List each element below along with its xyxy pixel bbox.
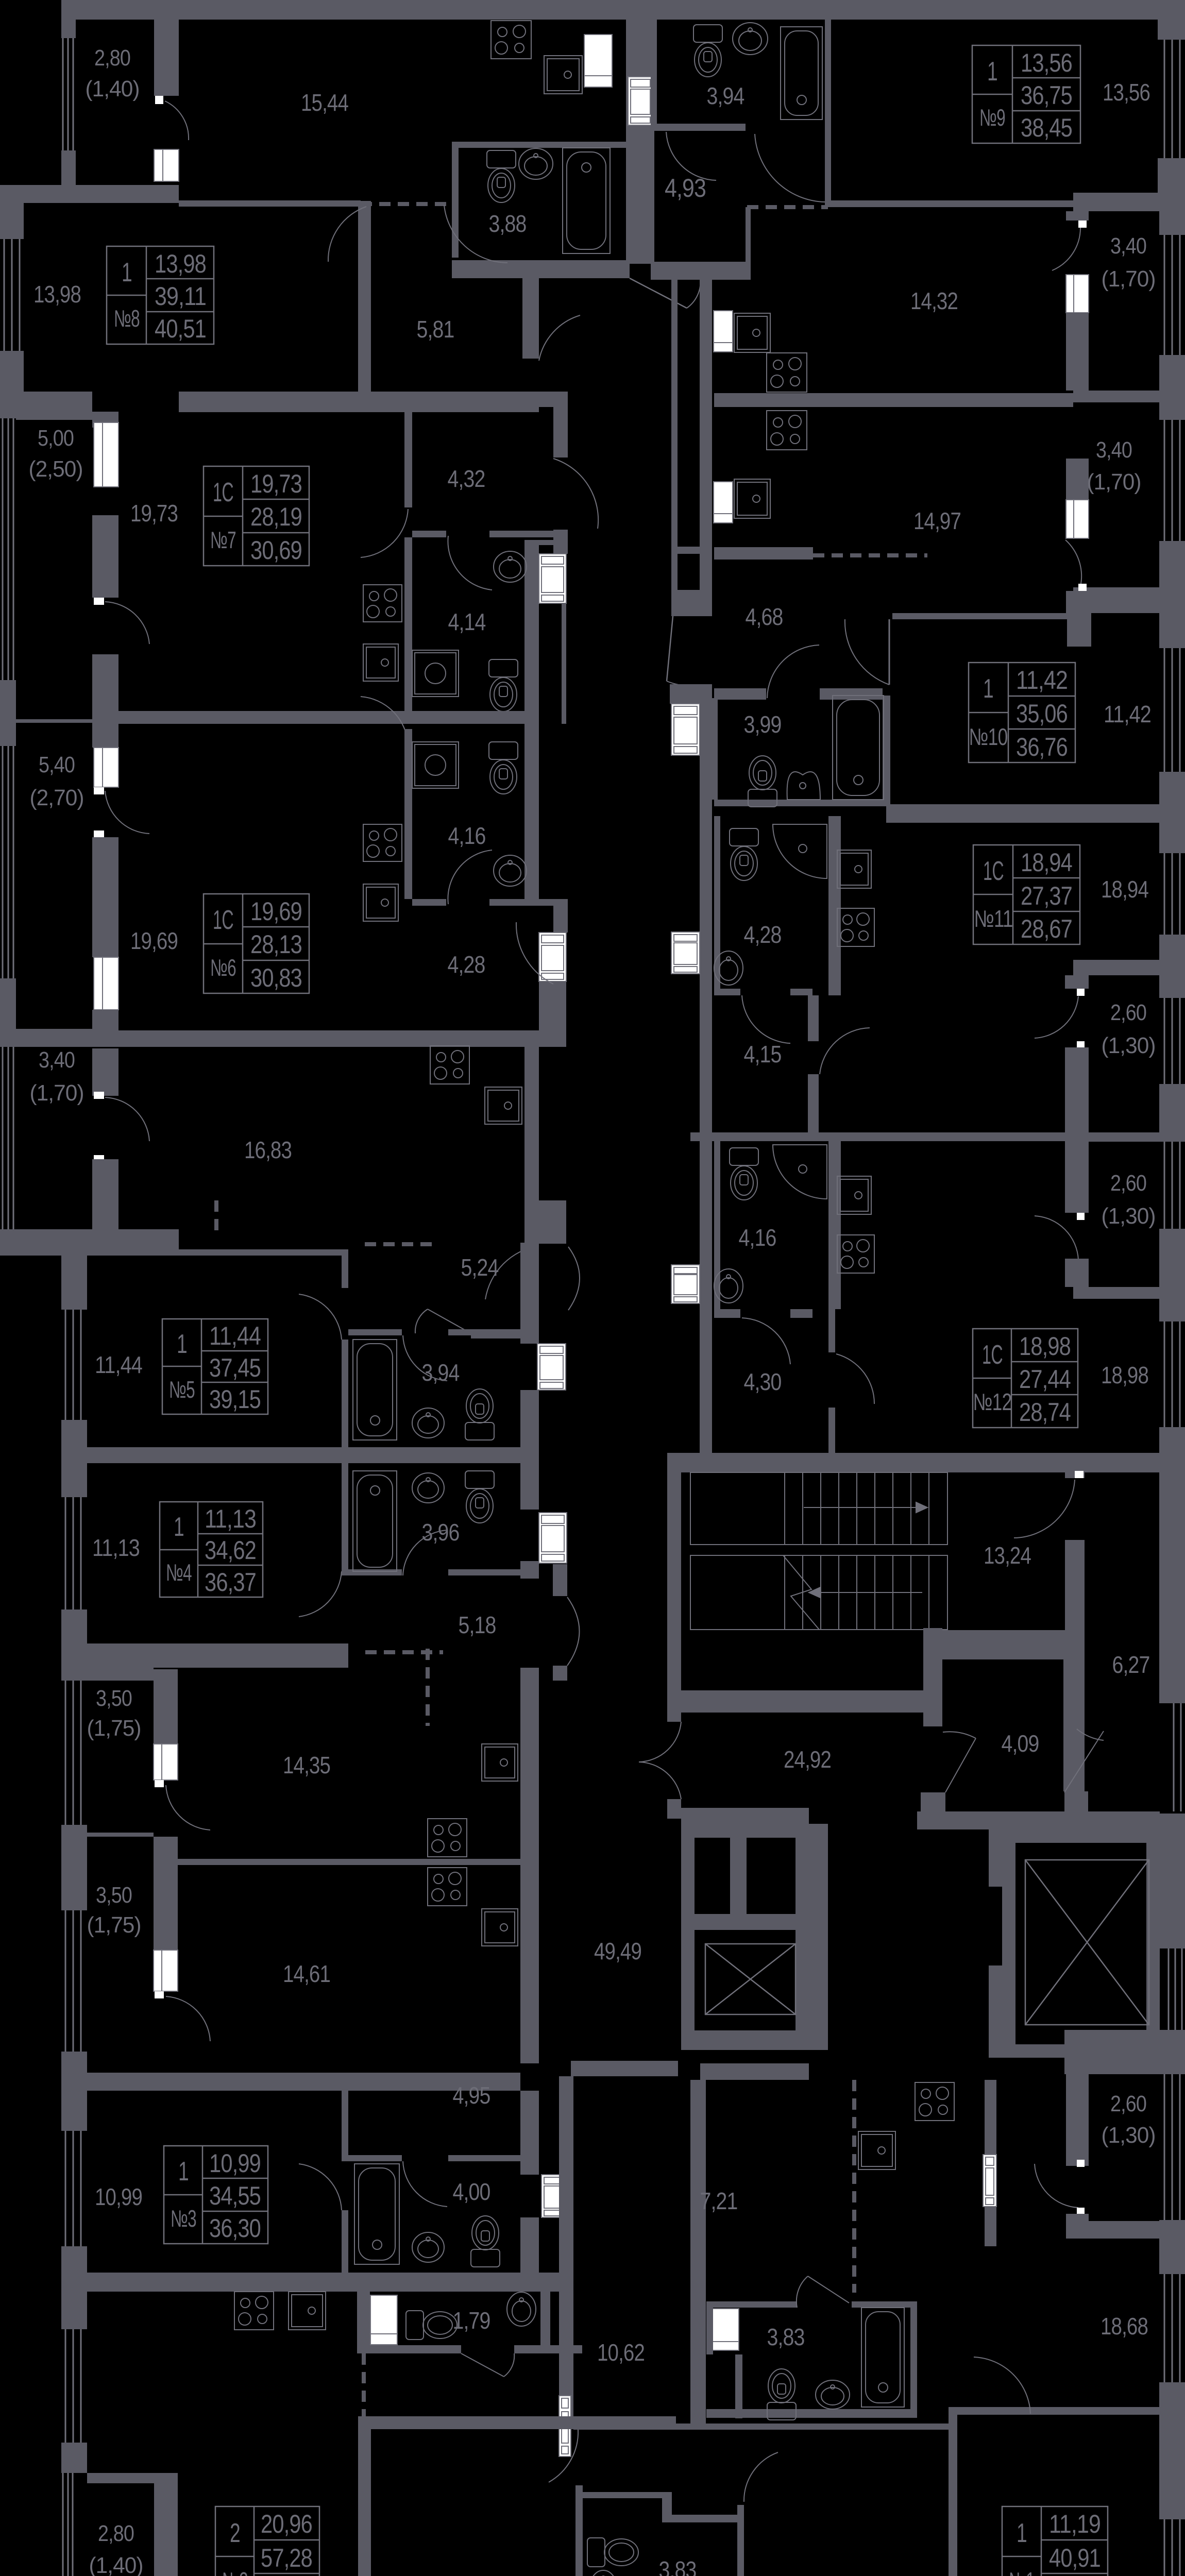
svg-text:3,94: 3,94 [707, 82, 744, 109]
svg-text:13,56: 13,56 [1103, 79, 1150, 106]
svg-text:28,13: 28,13 [250, 930, 302, 959]
svg-text:(1,30): (1,30) [1102, 1033, 1156, 1058]
svg-text:4,93: 4,93 [665, 174, 706, 202]
svg-text:3,50: 3,50 [96, 1686, 132, 1711]
svg-text:16,83: 16,83 [244, 1137, 292, 1163]
svg-text:1: 1 [178, 2157, 189, 2187]
svg-text:1: 1 [122, 258, 132, 287]
svg-text:20,96: 20,96 [261, 2510, 312, 2538]
svg-text:19,69: 19,69 [130, 927, 178, 954]
svg-text:1: 1 [1017, 2518, 1027, 2548]
svg-text:24,92: 24,92 [784, 1746, 831, 1773]
svg-text:4,09: 4,09 [1002, 1730, 1039, 1757]
svg-text:18,98: 18,98 [1101, 1362, 1148, 1388]
svg-text:4,32: 4,32 [448, 465, 485, 492]
svg-text:36,76: 36,76 [1016, 733, 1068, 761]
svg-text:(1,40): (1,40) [89, 2553, 143, 2576]
svg-text:(2,50): (2,50) [29, 456, 83, 482]
svg-text:19,73: 19,73 [250, 469, 302, 498]
svg-text:5,00: 5,00 [38, 426, 74, 451]
svg-text:№5: №5 [169, 1376, 195, 1403]
svg-text:4,15: 4,15 [744, 1041, 782, 1067]
svg-text:6,27: 6,27 [1112, 1651, 1150, 1678]
svg-text:10,62: 10,62 [597, 2339, 645, 2366]
svg-text:1: 1 [174, 1512, 184, 1542]
svg-text:3,99: 3,99 [744, 711, 782, 738]
svg-text:1: 1 [987, 57, 997, 87]
svg-text:19,73: 19,73 [130, 500, 178, 527]
svg-text:57,28: 57,28 [261, 2544, 312, 2572]
svg-text:1С: 1С [982, 1340, 1003, 1370]
svg-text:28,74: 28,74 [1019, 1398, 1071, 1427]
svg-text:30,83: 30,83 [250, 963, 302, 992]
svg-text:39,11: 39,11 [155, 282, 206, 311]
svg-text:14,97: 14,97 [913, 507, 961, 534]
svg-text:49,49: 49,49 [594, 1938, 641, 1964]
svg-text:10,99: 10,99 [95, 2183, 142, 2210]
svg-text:40,51: 40,51 [155, 314, 206, 343]
svg-text:4,14: 4,14 [448, 608, 486, 635]
svg-text:2,80: 2,80 [98, 2521, 134, 2546]
svg-text:№1: №1 [1009, 2567, 1035, 2576]
svg-text:3,83: 3,83 [767, 2324, 805, 2350]
svg-text:27,37: 27,37 [1021, 882, 1072, 910]
svg-text:5,24: 5,24 [461, 1254, 499, 1281]
svg-text:11,44: 11,44 [95, 1351, 142, 1378]
svg-text:1,79: 1,79 [453, 2307, 490, 2334]
svg-text:5,81: 5,81 [417, 316, 454, 343]
svg-text:(1,70): (1,70) [30, 1080, 84, 1106]
svg-text:(1,30): (1,30) [1102, 2123, 1156, 2148]
svg-text:(1,40): (1,40) [86, 76, 140, 101]
svg-text:34,55: 34,55 [209, 2181, 261, 2210]
svg-text:№7: №7 [210, 527, 236, 553]
svg-text:15,44: 15,44 [301, 89, 348, 116]
svg-text:18,94: 18,94 [1021, 848, 1072, 877]
svg-text:1: 1 [983, 674, 993, 704]
svg-text:14,32: 14,32 [910, 287, 958, 314]
svg-text:11,44: 11,44 [209, 1321, 261, 1350]
svg-text:2,80: 2,80 [94, 45, 130, 71]
svg-text:(2,70): (2,70) [30, 785, 84, 810]
svg-text:№8: №8 [114, 305, 140, 332]
svg-text:11,13: 11,13 [92, 1534, 140, 1561]
svg-text:40,91: 40,91 [1049, 2544, 1101, 2572]
svg-text:5,40: 5,40 [39, 752, 75, 777]
svg-text:11,42: 11,42 [1104, 701, 1151, 727]
svg-text:4,30: 4,30 [744, 1368, 782, 1395]
svg-text:28,67: 28,67 [1021, 914, 1072, 943]
svg-text:30,69: 30,69 [250, 536, 302, 565]
svg-text:№9: №9 [979, 104, 1005, 131]
svg-text:18,94: 18,94 [1101, 876, 1148, 903]
svg-text:2,60: 2,60 [1110, 2091, 1146, 2116]
svg-text:(1,30): (1,30) [1102, 1204, 1156, 1229]
svg-text:14,35: 14,35 [283, 1752, 330, 1778]
svg-text:№12: №12 [973, 1388, 1012, 1415]
svg-text:13,24: 13,24 [984, 1542, 1031, 1569]
svg-text:1С: 1С [213, 905, 233, 935]
svg-text:3,94: 3,94 [422, 1359, 460, 1386]
svg-text:11,13: 11,13 [205, 1504, 256, 1533]
svg-text:4,28: 4,28 [448, 951, 485, 978]
svg-text:36,30: 36,30 [209, 2214, 261, 2243]
svg-text:28,19: 28,19 [250, 502, 302, 531]
svg-text:5,18: 5,18 [459, 1612, 496, 1638]
svg-text:36,37: 36,37 [205, 1568, 256, 1597]
svg-text:37,45: 37,45 [209, 1353, 261, 1382]
svg-text:3,88: 3,88 [489, 210, 527, 237]
svg-text:3,96: 3,96 [422, 1519, 460, 1546]
svg-text:3,40: 3,40 [39, 1047, 75, 1073]
svg-text:1С: 1С [213, 478, 233, 507]
svg-text:7,21: 7,21 [700, 2188, 738, 2214]
svg-text:18,68: 18,68 [1101, 2313, 1148, 2340]
svg-text:3,40: 3,40 [1110, 233, 1146, 259]
svg-text:4,16: 4,16 [448, 822, 486, 849]
svg-text:(1,75): (1,75) [87, 1716, 141, 1741]
svg-text:1С: 1С [983, 856, 1004, 886]
svg-text:3,50: 3,50 [96, 1883, 132, 1908]
svg-text:3,83: 3,83 [659, 2556, 697, 2576]
svg-text:13,98: 13,98 [155, 249, 206, 278]
svg-text:4,28: 4,28 [744, 921, 782, 948]
svg-text:2: 2 [230, 2518, 240, 2548]
svg-text:3,40: 3,40 [1096, 437, 1132, 463]
svg-text:№10: №10 [969, 723, 1008, 750]
svg-text:38,45: 38,45 [1021, 113, 1072, 142]
svg-text:11,19: 11,19 [1049, 2510, 1101, 2538]
svg-text:2,60: 2,60 [1110, 1000, 1146, 1025]
svg-text:№6: №6 [210, 954, 236, 981]
svg-text:18,98: 18,98 [1019, 1332, 1071, 1361]
svg-text:(1,70): (1,70) [1087, 469, 1141, 495]
svg-text:4,95: 4,95 [453, 2082, 490, 2109]
svg-text:№4: №4 [166, 1559, 192, 1586]
svg-text:27,44: 27,44 [1019, 1365, 1071, 1394]
svg-text:11,42: 11,42 [1016, 666, 1068, 694]
svg-text:39,15: 39,15 [209, 1385, 261, 1414]
svg-text:4,16: 4,16 [739, 1224, 776, 1251]
svg-text:13,98: 13,98 [33, 281, 81, 308]
svg-text:19,69: 19,69 [250, 897, 302, 926]
svg-text:14,61: 14,61 [283, 1960, 330, 1987]
svg-text:(1,75): (1,75) [87, 1912, 141, 1938]
svg-text:№2: №2 [222, 2567, 248, 2576]
svg-text:13,56: 13,56 [1021, 48, 1072, 77]
svg-text:2,60: 2,60 [1110, 1171, 1146, 1196]
svg-text:(1,70): (1,70) [1102, 266, 1156, 292]
svg-text:4,00: 4,00 [453, 2178, 490, 2205]
svg-text:№3: №3 [171, 2205, 196, 2232]
svg-text:10,99: 10,99 [209, 2149, 261, 2178]
svg-text:1: 1 [177, 1329, 187, 1359]
svg-text:35,06: 35,06 [1016, 699, 1068, 728]
svg-text:№11: №11 [974, 905, 1013, 932]
svg-text:36,75: 36,75 [1021, 81, 1072, 110]
svg-text:4,68: 4,68 [746, 603, 783, 630]
svg-text:34,62: 34,62 [205, 1536, 256, 1565]
